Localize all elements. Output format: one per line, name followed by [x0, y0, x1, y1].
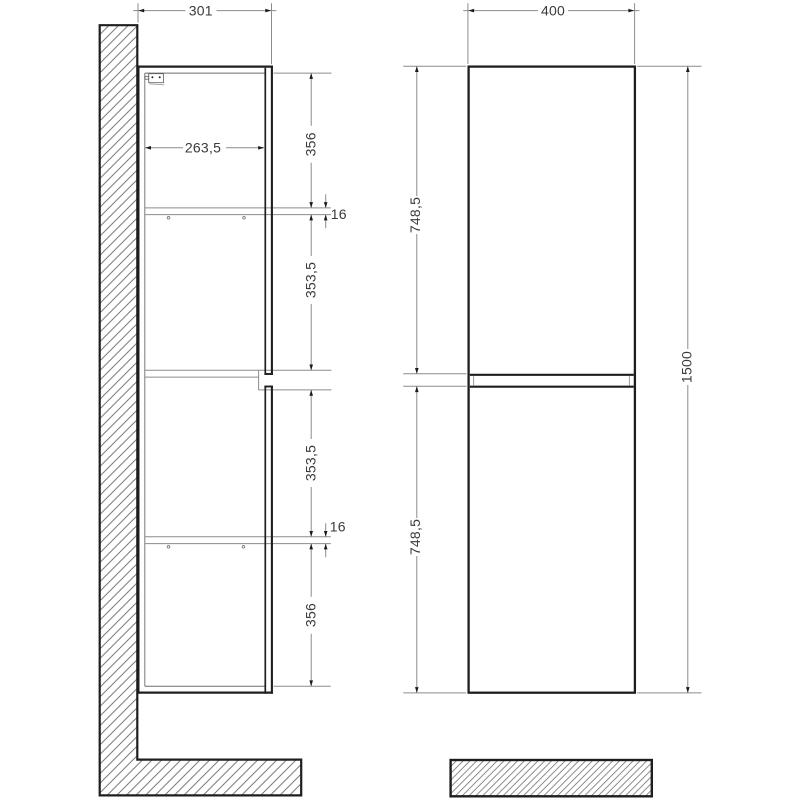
svg-text:748,5: 748,5	[407, 519, 423, 555]
svg-text:301: 301	[189, 3, 213, 19]
svg-text:16: 16	[330, 518, 346, 534]
svg-text:353,5: 353,5	[303, 445, 319, 481]
svg-text:748,5: 748,5	[407, 197, 423, 233]
svg-text:356: 356	[303, 132, 319, 156]
svg-text:356: 356	[303, 603, 319, 627]
svg-text:1500: 1500	[679, 351, 695, 383]
svg-text:263,5: 263,5	[185, 140, 221, 156]
svg-text:16: 16	[331, 206, 347, 222]
svg-text:353,5: 353,5	[303, 262, 319, 298]
svg-text:400: 400	[541, 3, 565, 19]
